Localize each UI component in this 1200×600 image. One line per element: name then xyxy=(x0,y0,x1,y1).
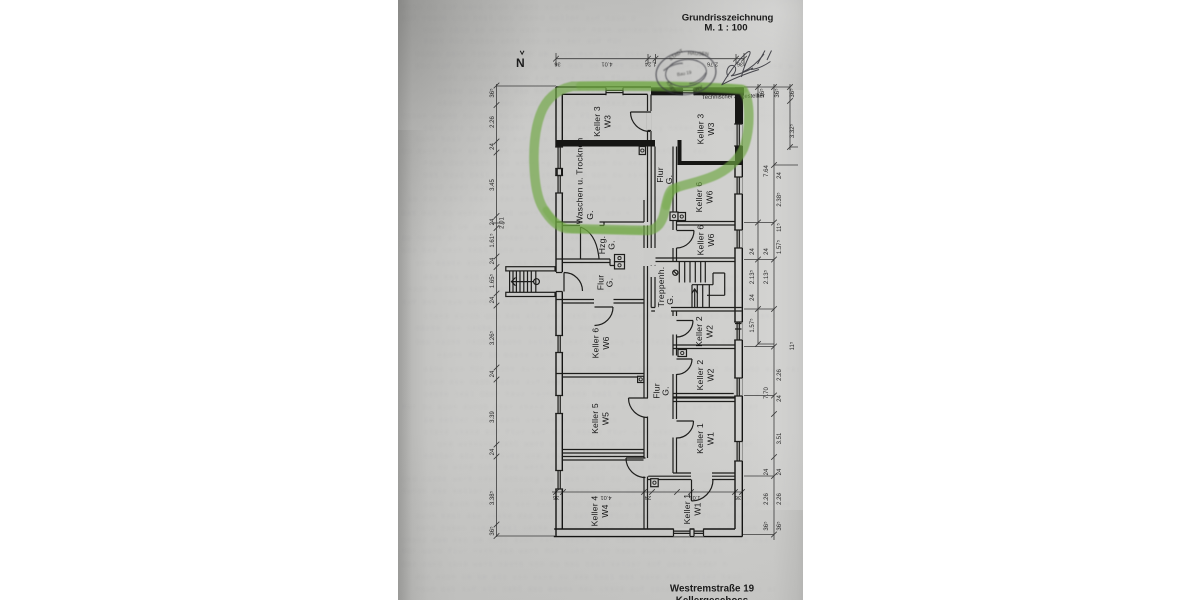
svg-text:Waschen u. Trocknen: Waschen u. Trocknen xyxy=(575,138,585,225)
svg-text:24: 24 xyxy=(490,218,496,225)
svg-text:G.: G. xyxy=(585,210,595,219)
svg-text:Keller 1: Keller 1 xyxy=(682,494,692,525)
svg-text:3.45: 3.45 xyxy=(490,179,496,191)
svg-text:G.: G. xyxy=(664,175,674,184)
svg-text:3.51: 3.51 xyxy=(777,432,783,444)
svg-text:2.01: 2.01 xyxy=(500,217,506,229)
svg-text:Keller 3: Keller 3 xyxy=(592,106,602,137)
svg-text:3.32⁵: 3.32⁵ xyxy=(789,123,796,138)
svg-text:24: 24 xyxy=(750,294,756,301)
svg-text:24: 24 xyxy=(490,448,496,455)
svg-text:24: 24 xyxy=(764,468,770,475)
svg-text:36⁵: 36⁵ xyxy=(489,88,496,98)
svg-text:Keller 2: Keller 2 xyxy=(694,316,704,347)
svg-text:Keller 1: Keller 1 xyxy=(695,423,705,454)
svg-text:11⁵: 11⁵ xyxy=(789,341,796,350)
svg-text:2.26: 2.26 xyxy=(777,369,783,381)
svg-text:24: 24 xyxy=(490,257,496,264)
svg-text:Keller 5: Keller 5 xyxy=(590,403,600,434)
svg-text:36: 36 xyxy=(735,494,741,500)
svg-text:G.: G. xyxy=(665,295,675,304)
svg-text:Keller 6: Keller 6 xyxy=(590,328,600,359)
svg-text:36⁵: 36⁵ xyxy=(763,521,770,531)
svg-text:36: 36 xyxy=(554,61,560,67)
svg-text:W3: W3 xyxy=(706,122,716,135)
svg-text:G.: G. xyxy=(661,386,671,395)
svg-text:7.70: 7.70 xyxy=(764,387,770,399)
svg-text:Keller 4: Keller 4 xyxy=(589,496,599,527)
svg-text:36⁵: 36⁵ xyxy=(774,88,781,98)
svg-text:36⁵: 36⁵ xyxy=(789,88,796,98)
svg-text:Keller 2: Keller 2 xyxy=(695,360,705,391)
svg-text:1.57⁵: 1.57⁵ xyxy=(749,318,756,333)
svg-text:4.01: 4.01 xyxy=(602,61,613,67)
svg-text:W6: W6 xyxy=(704,190,714,203)
svg-text:24: 24 xyxy=(490,370,496,377)
svg-text:24: 24 xyxy=(777,468,783,475)
svg-text:24: 24 xyxy=(777,172,783,179)
svg-text:1.57⁵: 1.57⁵ xyxy=(776,239,783,254)
svg-text:W2: W2 xyxy=(705,368,715,381)
svg-text:24: 24 xyxy=(490,143,496,150)
svg-text:24: 24 xyxy=(490,296,496,303)
svg-text:W1: W1 xyxy=(705,432,715,445)
svg-text:11⁵: 11⁵ xyxy=(776,223,783,232)
svg-text:24: 24 xyxy=(750,248,756,255)
svg-text:36⁵: 36⁵ xyxy=(776,521,783,531)
svg-text:2.13⁵: 2.13⁵ xyxy=(749,269,756,284)
svg-text:24: 24 xyxy=(764,248,770,255)
svg-text:Hzg.: Hzg. xyxy=(597,236,607,254)
svg-text:2.26: 2.26 xyxy=(490,116,496,128)
svg-text:W6: W6 xyxy=(706,233,716,246)
svg-text:N: N xyxy=(516,56,525,70)
svg-text:2.13⁵: 2.13⁵ xyxy=(763,269,770,284)
svg-text:Keller 3: Keller 3 xyxy=(695,114,705,145)
svg-text:7.64: 7.64 xyxy=(764,165,770,177)
svg-text:3.38⁵: 3.38⁵ xyxy=(489,490,496,505)
svg-text:G.: G. xyxy=(605,278,615,287)
svg-text:W6: W6 xyxy=(601,336,611,349)
svg-text:W1: W1 xyxy=(692,502,702,515)
svg-text:1.65⁵: 1.65⁵ xyxy=(489,273,496,288)
svg-text:1.24: 1.24 xyxy=(645,61,656,67)
svg-text:G.: G. xyxy=(606,240,616,249)
svg-text:Westremstraße 19: Westremstraße 19 xyxy=(670,584,755,595)
svg-text:24: 24 xyxy=(777,395,783,402)
svg-text:W5: W5 xyxy=(600,412,610,425)
svg-text:W2: W2 xyxy=(704,325,714,338)
svg-text:HAUSEN: HAUSEN xyxy=(688,51,710,58)
svg-text:Technischer Angestellter: Technischer Angestellter xyxy=(702,93,765,101)
svg-text:2.38⁵: 2.38⁵ xyxy=(776,192,783,207)
svg-text:W3: W3 xyxy=(602,115,612,128)
svg-text:4.01: 4.01 xyxy=(601,494,612,500)
svg-text:3.39: 3.39 xyxy=(490,411,496,423)
svg-text:Bau 19: Bau 19 xyxy=(677,70,693,78)
svg-text:1.61⁵: 1.61⁵ xyxy=(489,233,496,248)
svg-text:Kellergeschoss: Kellergeschoss xyxy=(676,596,749,600)
svg-text:W4: W4 xyxy=(600,504,610,517)
svg-text:Keller 6: Keller 6 xyxy=(696,225,706,256)
svg-text:36⁵: 36⁵ xyxy=(489,526,496,536)
svg-text:2.26: 2.26 xyxy=(777,493,783,505)
svg-text:M. 1 : 100: M. 1 : 100 xyxy=(704,23,747,34)
svg-text:2.26: 2.26 xyxy=(764,493,770,505)
svg-text:3.26⁵: 3.26⁵ xyxy=(489,330,496,345)
